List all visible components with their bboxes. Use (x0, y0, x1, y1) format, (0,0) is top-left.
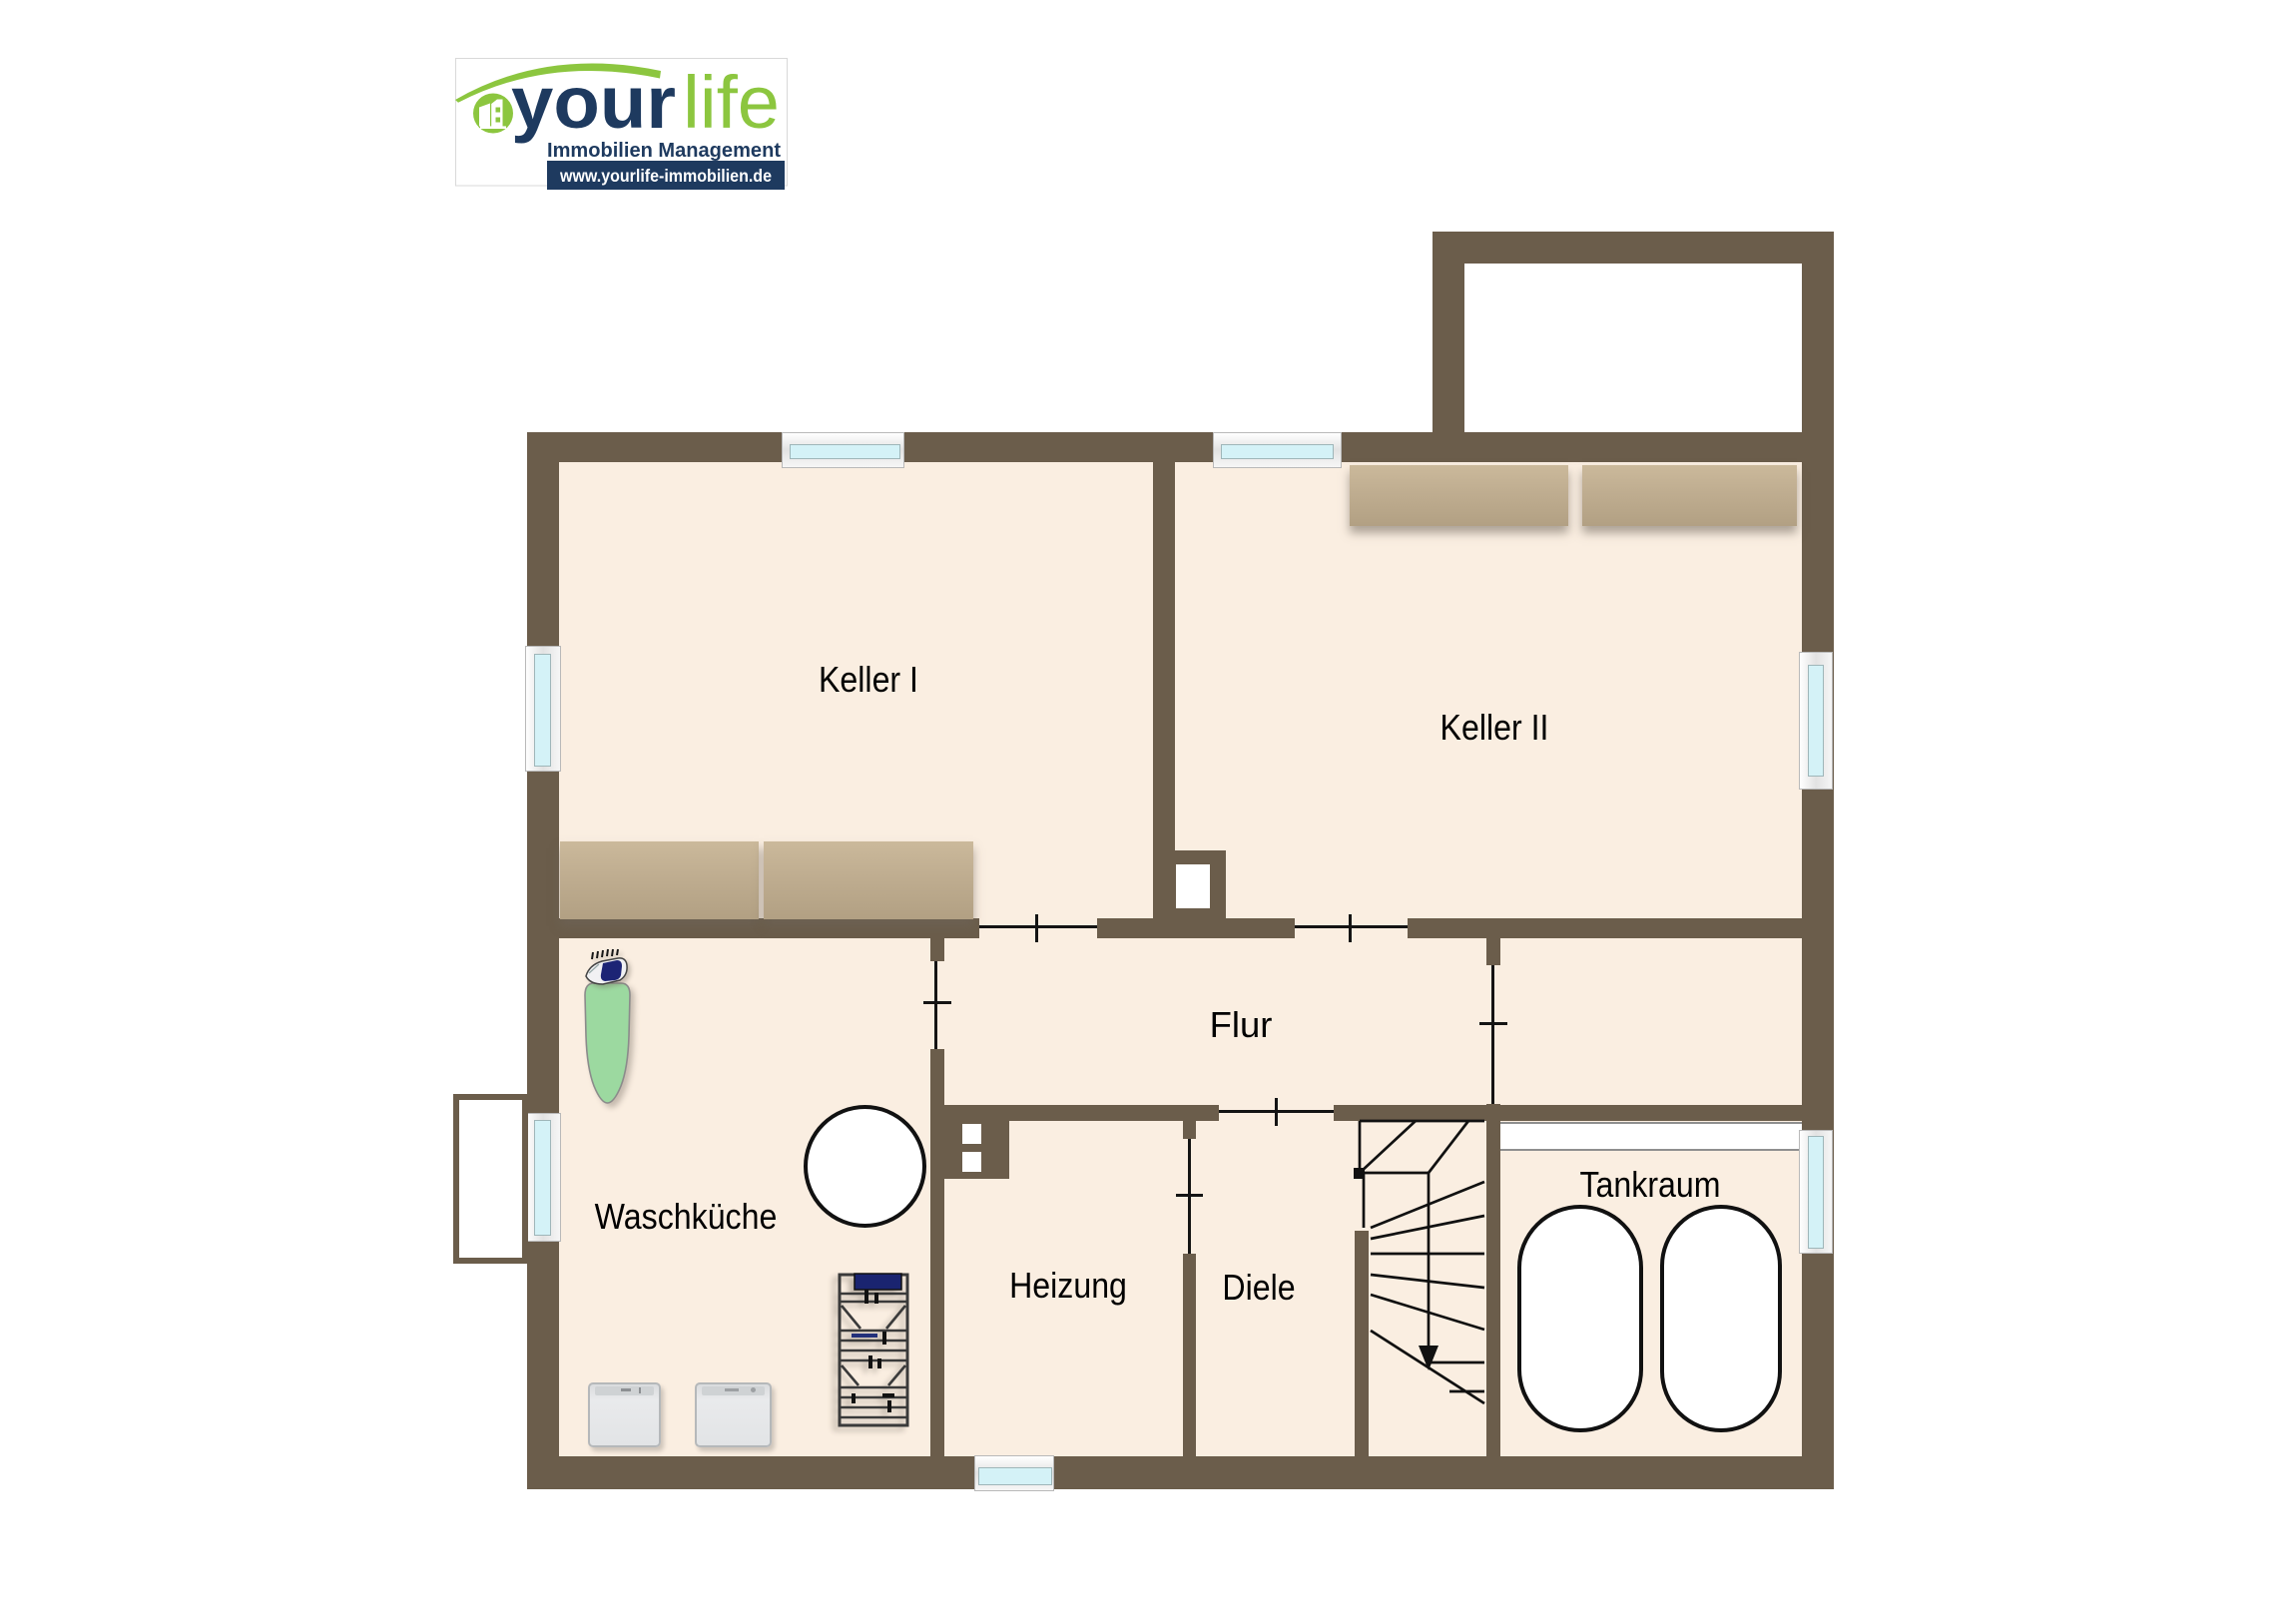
svg-text:www.yourlife-immobilien.de: www.yourlife-immobilien.de (559, 166, 772, 186)
svg-text:Immobilien Management: Immobilien Management (547, 140, 781, 162)
svg-text:your: your (511, 61, 676, 144)
svg-text:life: life (683, 61, 780, 144)
